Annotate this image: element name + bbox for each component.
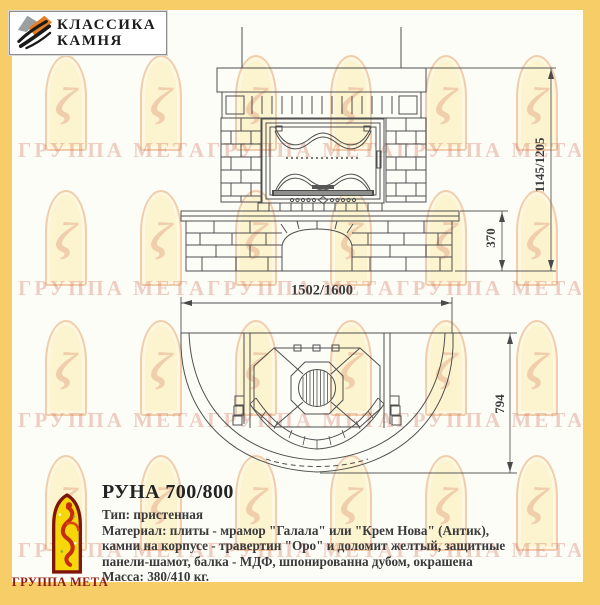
firebird-watermark-figure: ζ	[53, 80, 78, 126]
arch-watermark: ζ	[235, 55, 277, 151]
arch-watermark: ζ	[235, 320, 277, 416]
company-logo-line1: КЛАССИКА	[57, 17, 156, 33]
firebird-watermark-figure: ζ	[53, 215, 78, 261]
firebird-watermark-figure: ζ	[433, 215, 458, 261]
product-title: РУНА 700/800	[102, 481, 568, 504]
firebird-watermark-figure: ζ	[433, 345, 458, 391]
arch-watermark: ζ	[425, 320, 467, 416]
arch-watermark: ζ	[45, 190, 87, 286]
arch-watermark: ζ	[330, 55, 372, 151]
product-mass: Масса: 380/410 кг.	[102, 569, 568, 585]
firebird-watermark-figure: ζ	[524, 345, 549, 391]
catalog-page: { "page": { "border_color": "#f7cd67", "…	[0, 0, 600, 600]
product-description: РУНА 700/800 Тип: пристенная Материал: п…	[102, 481, 568, 585]
meta-group-logo: ГРУППА МЕТА	[14, 492, 120, 574]
meta-logo-caption: ГРУППА МЕТА	[10, 575, 110, 590]
company-logo-text: КЛАССИКА КАМНЯ	[57, 17, 156, 49]
firebird-watermark-figure: ζ	[243, 345, 268, 391]
firebird-watermark-figure: ζ	[148, 215, 173, 261]
product-material-line-3: панели-шамот, балка - МДФ, шпонированна …	[102, 554, 568, 570]
arch-watermark: ζ	[45, 320, 87, 416]
firebird-watermark-figure: ζ	[338, 215, 363, 261]
firebird-watermark-figure: ζ	[524, 80, 549, 126]
meta-arch-emblem	[48, 492, 86, 574]
arch-watermark: ζ	[516, 320, 558, 416]
firebird-watermark-figure: ζ	[148, 80, 173, 126]
arch-watermark: ζ	[516, 190, 558, 286]
dim-label-height: 1145/1205	[532, 138, 548, 193]
dim-label-hearth-height: 370	[483, 228, 499, 248]
dim-label-width: 1502/1600	[291, 283, 353, 300]
dim-label-depth: 794	[492, 394, 508, 414]
arch-watermark: ζ	[45, 55, 87, 151]
arch-watermark: ζ	[330, 320, 372, 416]
watermark-text-row: ГРУППА МЕТАГРУППА МЕТАГРУППА МЕТА	[18, 138, 581, 163]
stone-logo-icon	[15, 12, 53, 55]
company-logo: КЛАССИКА КАМНЯ	[9, 11, 167, 55]
arch-watermark: ζ	[140, 190, 182, 286]
arch-watermark: ζ	[425, 55, 467, 151]
arch-watermark: ζ	[330, 190, 372, 286]
firebird-watermark-figure: ζ	[53, 345, 78, 391]
firebird-watermark-figure: ζ	[524, 215, 549, 261]
firebird-watermark-figure: ζ	[243, 215, 268, 261]
product-type: Тип: пристенная	[102, 507, 568, 523]
arch-watermark: ζ	[140, 320, 182, 416]
firebird-watermark-figure: ζ	[338, 80, 363, 126]
firebird-watermark-figure: ζ	[338, 345, 363, 391]
firebird-watermark-figure: ζ	[433, 80, 458, 126]
company-logo-line2: КАМНЯ	[57, 33, 123, 49]
arch-watermark: ζ	[235, 190, 277, 286]
product-material-line-1: Материал: плиты - мрамор "Галала" или "К…	[102, 523, 568, 539]
firebird-watermark-figure: ζ	[243, 80, 268, 126]
product-material-line-2: камни на корпусе - травертин "Оро" и дол…	[102, 538, 568, 554]
arch-watermark: ζ	[140, 55, 182, 151]
arch-watermark: ζ	[425, 190, 467, 286]
firebird-watermark-figure: ζ	[148, 345, 173, 391]
